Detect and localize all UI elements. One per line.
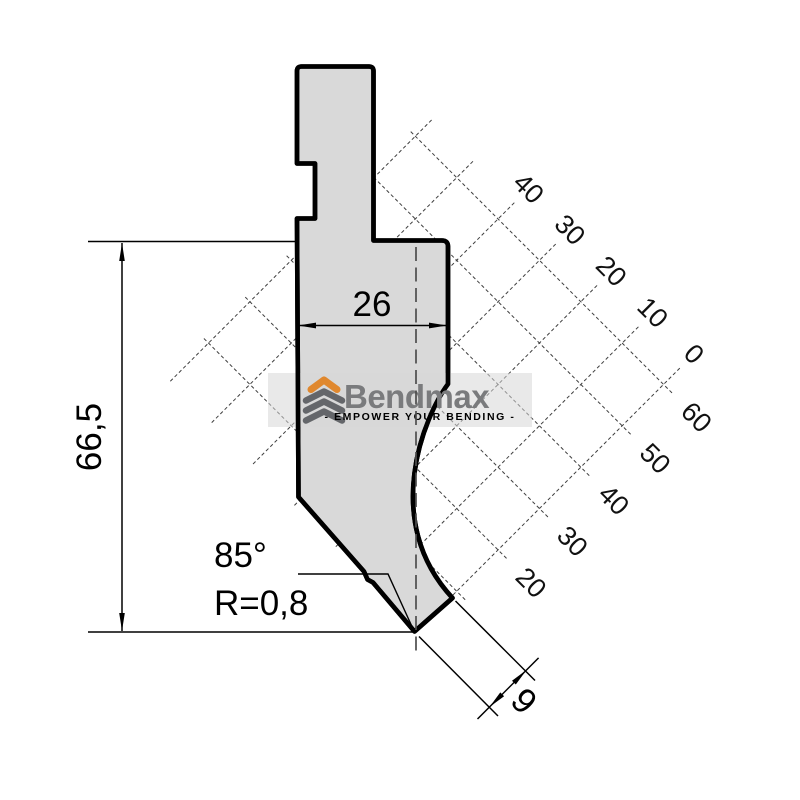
grid-label-20-right: 20 [510,562,552,604]
arrowhead-down [119,613,125,631]
brand-name: Bendmax [344,378,490,415]
grid-label-0-top: 0 [678,338,710,370]
grid-label-60-right: 60 [675,396,717,438]
arrowhead-sw [490,692,505,707]
punch-drawing-svg: 40 30 20 10 0 60 50 40 30 20 Bendmax [0,0,800,800]
grid-label-40-right: 40 [592,479,634,521]
grid-label-50-right: 50 [634,437,676,479]
brand-tagline: - EMPOWER YOUR BENDING - [324,411,515,423]
radius-text: R=0,8 [214,584,308,623]
arrowhead-ne [512,670,527,685]
offset-extension-line-2 [456,601,536,681]
grid-top-axis-labels: 40 30 20 10 0 [507,167,710,370]
width-dimension-text: 26 [353,285,392,324]
offset-extension-line-1 [419,637,498,717]
angle-text: 85° [214,536,267,575]
grid-label-30-right: 30 [551,520,593,562]
arrowhead-up [119,243,125,261]
technical-drawing-canvas: 40 30 20 10 0 60 50 40 30 20 Bendmax [0,0,800,800]
tip-offset-dimension: 9 [419,601,544,722]
height-dimension-text: 66,5 [70,403,109,471]
